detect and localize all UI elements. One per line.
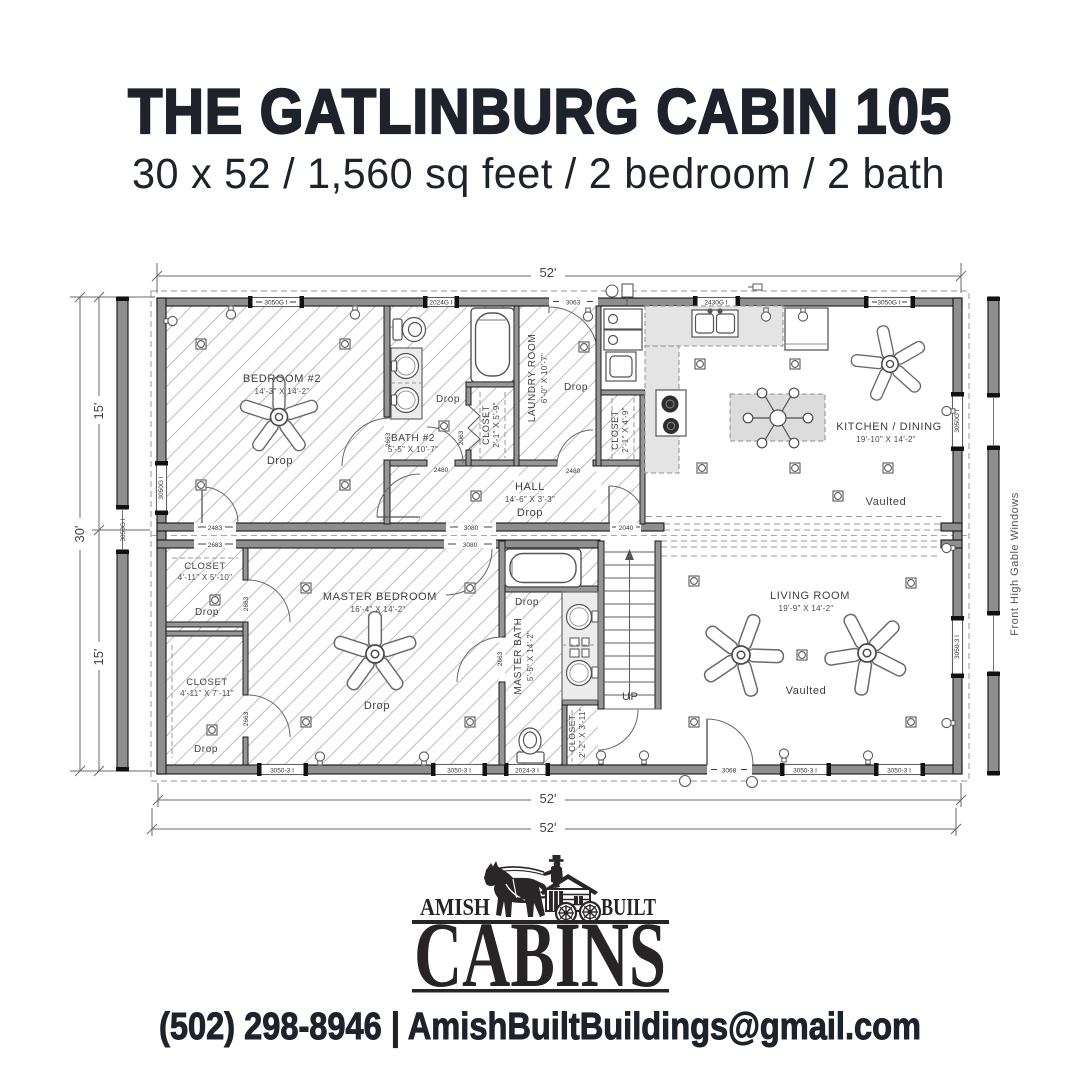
svg-text:3050-3 I: 3050-3 I xyxy=(270,768,294,775)
svg-text:(502) 298-8946 | AmishBuiltBui: (502) 298-8946 | AmishBuiltBuildings@gma… xyxy=(159,1006,921,1048)
svg-text:30 x 52 / 1,560 sq feet / 2 be: 30 x 52 / 1,560 sq feet / 2 bedroom / 2 … xyxy=(132,150,945,198)
svg-text:2480: 2480 xyxy=(434,467,449,474)
svg-text:16'-4" X 14'-2": 16'-4" X 14'-2" xyxy=(350,605,405,614)
svg-text:2663: 2663 xyxy=(497,651,504,666)
svg-text:3050G I: 3050G I xyxy=(264,300,287,307)
svg-text:CLOSET: CLOSET xyxy=(567,714,577,752)
svg-text:2430G I: 2430G I xyxy=(704,300,727,307)
svg-text:30': 30' xyxy=(72,526,87,543)
svg-text:HALL: HALL xyxy=(515,481,545,493)
svg-text:2'-1" X 5'-9": 2'-1" X 5'-9" xyxy=(492,402,501,448)
svg-text:Drop: Drop xyxy=(515,597,539,608)
svg-text:BATH #2: BATH #2 xyxy=(391,433,435,444)
svg-text:19'-10" X 14'-2": 19'-10" X 14'-2" xyxy=(856,435,916,444)
svg-text:3050-3 I: 3050-3 I xyxy=(447,768,471,775)
svg-text:KITCHEN / DINING: KITCHEN / DINING xyxy=(836,421,942,433)
svg-text:Drop: Drop xyxy=(267,455,293,467)
svg-text:Front High Gable Windows: Front High Gable Windows xyxy=(1009,492,1021,635)
svg-text:MASTER BEDROOM: MASTER BEDROOM xyxy=(323,591,437,603)
svg-text:2'-1" X 4'-9": 2'-1" X 4'-9" xyxy=(621,407,630,453)
svg-text:2483: 2483 xyxy=(208,525,223,532)
svg-text:BEDROOM #2: BEDROOM #2 xyxy=(243,373,321,385)
svg-text:3068: 3068 xyxy=(722,768,737,775)
svg-text:4'-11" X 5'-10": 4'-11" X 5'-10" xyxy=(178,573,232,582)
svg-text:Drop: Drop xyxy=(195,607,219,618)
svg-text:14'-3" X 14'-2": 14'-3" X 14'-2" xyxy=(254,387,309,396)
svg-text:2683: 2683 xyxy=(208,542,223,549)
svg-text:15': 15' xyxy=(91,649,106,666)
svg-text:5'-5" X 14'-2": 5'-5" X 14'-2" xyxy=(526,631,535,681)
svg-text:4'-11" X 7'-11": 4'-11" X 7'-11" xyxy=(180,689,234,698)
svg-text:LAUNDRY ROOM: LAUNDRY ROOM xyxy=(527,334,538,423)
svg-text:3063: 3063 xyxy=(566,300,581,307)
svg-text:CLOSET: CLOSET xyxy=(610,410,620,450)
svg-text:THE GATLINBURG CABIN 105: THE GATLINBURG CABIN 105 xyxy=(128,77,952,147)
svg-text:Drop: Drop xyxy=(364,700,390,712)
svg-text:5'-5" X 10'-7": 5'-5" X 10'-7" xyxy=(388,445,438,454)
svg-text:2024G I: 2024G I xyxy=(429,300,452,307)
svg-text:CLOSET: CLOSET xyxy=(184,561,226,572)
svg-text:14'-6" X 3'-3": 14'-6" X 3'-3" xyxy=(505,495,555,504)
svg-text:UP: UP xyxy=(622,691,638,703)
svg-text:Vaulted: Vaulted xyxy=(866,496,907,508)
svg-text:2063: 2063 xyxy=(458,430,465,445)
svg-text:3050G I: 3050G I xyxy=(158,476,165,499)
svg-text:2024-3 I: 2024-3 I xyxy=(515,768,539,775)
svg-text:3050G I: 3050G I xyxy=(120,518,127,541)
svg-text:52': 52' xyxy=(540,265,557,280)
svg-text:2663: 2663 xyxy=(243,596,250,611)
svg-text:3080: 3080 xyxy=(464,525,479,532)
svg-text:2480: 2480 xyxy=(566,468,581,475)
svg-text:MASTER BATH: MASTER BATH xyxy=(513,618,524,695)
svg-text:6'-0" X 10'-7": 6'-0" X 10'-7" xyxy=(540,353,549,403)
svg-text:2'-2" X 3'-11": 2'-2" X 3'-11" xyxy=(578,708,587,758)
svg-text:3080: 3080 xyxy=(463,542,478,549)
svg-text:3050G I: 3050G I xyxy=(877,300,900,307)
svg-text:2040: 2040 xyxy=(619,525,634,532)
svg-text:52': 52' xyxy=(540,820,557,835)
svg-text:CLOSET: CLOSET xyxy=(186,677,228,688)
svg-text:19'-9" X 14'-2": 19'-9" X 14'-2" xyxy=(778,604,833,613)
svg-text:2663: 2663 xyxy=(243,711,250,726)
svg-text:3050-3 I: 3050-3 I xyxy=(887,768,911,775)
svg-text:Vaulted: Vaulted xyxy=(786,685,827,697)
svg-text:Drop: Drop xyxy=(194,744,218,755)
svg-text:52': 52' xyxy=(540,791,557,806)
svg-text:Drop: Drop xyxy=(436,394,460,405)
svg-text:Drop: Drop xyxy=(564,382,588,393)
svg-text:3050-3 I: 3050-3 I xyxy=(954,635,961,659)
svg-text:LIVING ROOM: LIVING ROOM xyxy=(770,590,850,602)
svg-text:3050-3 I: 3050-3 I xyxy=(793,768,817,775)
svg-text:CLOSET: CLOSET xyxy=(481,405,491,445)
svg-text:Drop: Drop xyxy=(517,507,543,519)
svg-text:15': 15' xyxy=(91,403,106,420)
svg-text:2663: 2663 xyxy=(385,432,392,447)
